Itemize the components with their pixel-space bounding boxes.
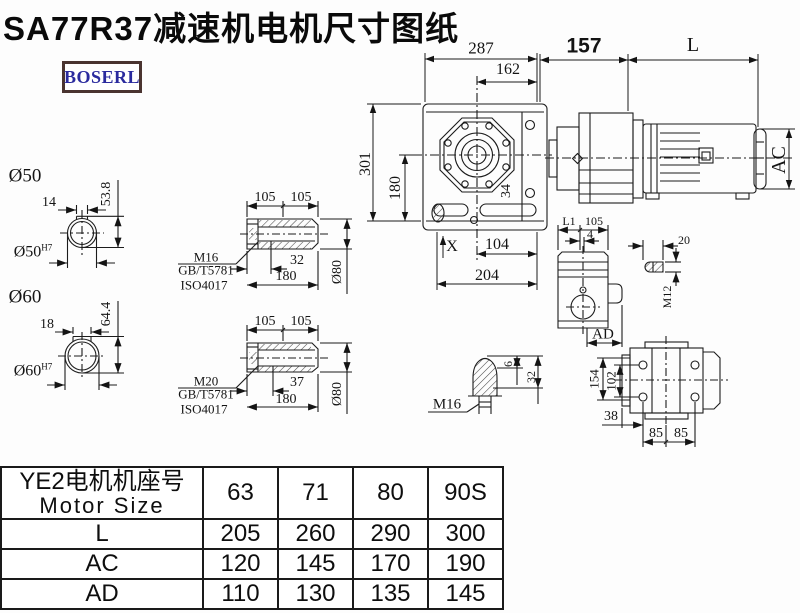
flange-dim-38-label: 38: [604, 410, 618, 424]
dim-X-label: X: [446, 239, 458, 255]
row-label-AD: AD: [1, 579, 203, 609]
key-dim-20-label: 20: [678, 234, 690, 246]
shaft50-bore-fit-label: Ø50H7: [14, 243, 53, 260]
flange-dim-85b-label: 85: [674, 427, 688, 441]
hs2-bore-depth-label: 37: [290, 376, 304, 390]
hs1-length-label: 180: [276, 270, 297, 284]
header-en: Motor Size: [2, 494, 202, 517]
plug-dim-6-label: 6: [502, 361, 514, 367]
dim-104-label: 104: [485, 237, 509, 253]
shaft60-bore-fit-label: Ø60H7: [14, 362, 53, 379]
flange-dim-85a-label: 85: [649, 427, 663, 441]
shaft50-key-width-label: 14: [42, 196, 56, 210]
shaft60-dia-label: Ø60: [9, 288, 42, 307]
shaft50-dia-label: Ø50: [9, 167, 42, 186]
side-dim-105-label: 105: [585, 215, 603, 227]
shaft50-height-label: 53.8: [100, 182, 114, 207]
cell-AC-63: 120: [203, 549, 278, 579]
dim-180-label: 180: [388, 176, 404, 200]
cell-AD-71: 130: [278, 579, 353, 609]
cell-L-90S: 300: [428, 519, 503, 549]
dim-157-label: 157: [566, 36, 601, 57]
hs1-dia-label: Ø80: [331, 260, 345, 284]
main-dimension-lines: [367, 53, 795, 290]
cell-AC-90S: 190: [428, 549, 503, 579]
side-dim-4-label: 4: [587, 228, 593, 240]
plug-thread-label: M16: [433, 398, 461, 413]
hs1-std-gb-label: GB/T5781: [178, 264, 234, 277]
key-thread-label: M12: [661, 286, 673, 309]
hs2-length-label: 180: [276, 393, 297, 407]
dim-L-label: L: [687, 35, 699, 55]
hs2-std-gb-label: GB/T5781: [178, 388, 234, 401]
col-80: 80: [353, 467, 428, 519]
table-row-L: L 205 260 290 300: [1, 519, 503, 549]
dim-287-label: 287: [468, 40, 494, 57]
dim-204-label: 204: [475, 268, 499, 284]
dim-34-label: 34: [500, 184, 514, 198]
hs2-dia-label: Ø80: [331, 382, 345, 406]
side-dim-AD-label: AD: [592, 328, 614, 343]
hs1-dim-105a-label: 105: [255, 191, 276, 205]
row-label-L: L: [1, 519, 203, 549]
shaft60-key-width-label: 18: [40, 318, 54, 332]
table-header-motor-size: YE2电机机座号 Motor Size: [1, 467, 203, 519]
plug-dim-32-label: 32: [525, 371, 537, 383]
col-90S: 90S: [428, 467, 503, 519]
col-71: 71: [278, 467, 353, 519]
dim-162-label: 162: [496, 62, 520, 78]
adapter-and-motor: [545, 113, 792, 203]
key-detail: [628, 240, 681, 286]
hs2-dim-105a-label: 105: [255, 315, 276, 329]
row-label-AC: AC: [1, 549, 203, 579]
motor-size-table: YE2电机机座号 Motor Size 63 71 80 90S L 205 2…: [0, 466, 504, 610]
table-row-AC: AC 120 145 170 190: [1, 549, 503, 579]
cell-AD-90S: 145: [428, 579, 503, 609]
table-row-AD: AD 110 130 135 145: [1, 579, 503, 609]
hs2-dim-105b-label: 105: [291, 315, 312, 329]
cell-AD-80: 135: [353, 579, 428, 609]
flange-dim-154-label: 154: [588, 369, 601, 389]
table-header-row: YE2电机机座号 Motor Size 63 71 80 90S: [1, 467, 503, 519]
dim-AC-label: AC: [769, 146, 789, 174]
cell-L-80: 290: [353, 519, 428, 549]
flange-dim-102-label: 102: [605, 371, 618, 391]
hs1-dim-105b-label: 105: [291, 191, 312, 205]
cell-L-63: 205: [203, 519, 278, 549]
dim-301-label: 301: [358, 152, 374, 176]
drawing-sheet: SA77R37减速机电机尺寸图纸 BOSERL: [0, 0, 800, 613]
hs2-std-iso-label: ISO4017: [181, 403, 228, 416]
gearbox-front-view: [413, 76, 552, 262]
side-dim-L1-label: L1: [562, 215, 575, 227]
cell-AC-80: 170: [353, 549, 428, 579]
shaft60-height-label: 64.4: [100, 302, 114, 327]
hs1-std-iso-label: ISO4017: [181, 279, 228, 292]
cell-L-71: 260: [278, 519, 353, 549]
cell-AD-63: 110: [203, 579, 278, 609]
col-63: 63: [203, 467, 278, 519]
cell-AC-71: 145: [278, 549, 353, 579]
hs1-bore-depth-label: 32: [290, 254, 304, 268]
header-cn: YE2电机机座号: [2, 469, 202, 494]
